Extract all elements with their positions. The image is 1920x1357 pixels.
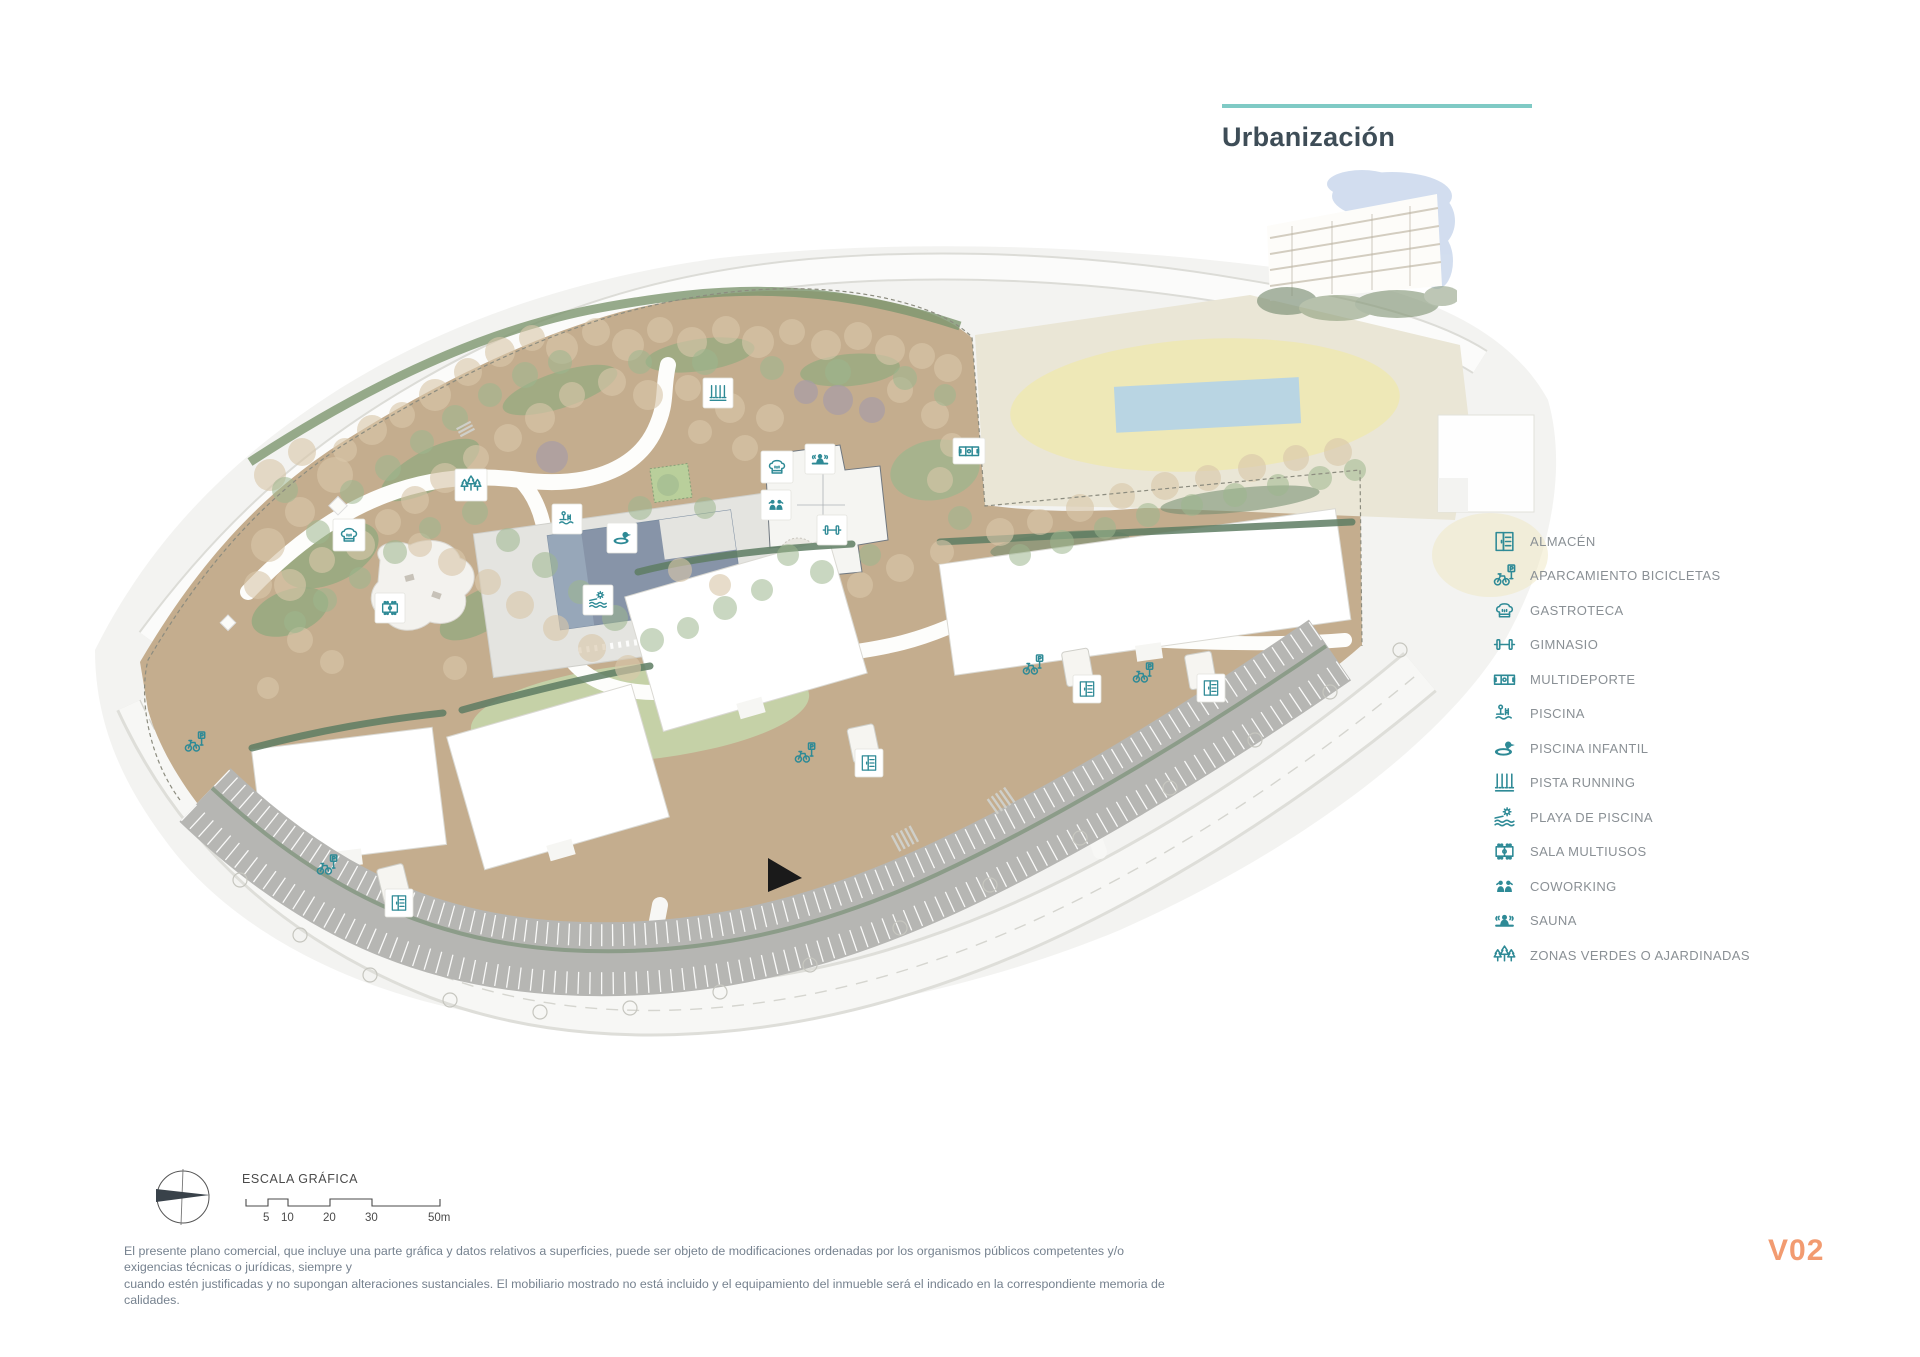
legend-item-piscina-infantil: PISCINA INFANTIL <box>1492 731 1750 766</box>
piscina-infantil-marker <box>607 523 637 553</box>
legend-item-sauna: SAUNA <box>1492 904 1750 939</box>
legend-item-piscina: PISCINA <box>1492 697 1750 732</box>
running-track-icon <box>1492 770 1517 795</box>
zonas-verdes-marker <box>455 469 487 501</box>
almacen-marker <box>855 749 883 777</box>
scale-tick: 30 <box>365 1212 378 1224</box>
header-accent-line <box>1222 104 1532 108</box>
page-title: Urbanización <box>1222 122 1395 153</box>
sun-waves-icon <box>1492 805 1517 830</box>
legend-label: SAUNA <box>1530 913 1577 928</box>
scale-tick: 20 <box>323 1212 336 1224</box>
legend-item-pista-running: PISTA RUNNING <box>1492 766 1750 801</box>
almacen-marker <box>385 889 413 917</box>
legend-label: ALMACÉN <box>1530 534 1596 549</box>
multipurpose-room-icon <box>1492 839 1517 864</box>
duck-float-icon <box>1492 736 1517 761</box>
pool-ladder-icon <box>1492 701 1517 726</box>
legend-label: GIMNASIO <box>1530 637 1598 652</box>
scale-tick: 50m <box>428 1212 450 1224</box>
legend-label: MULTIDEPORTE <box>1530 672 1635 687</box>
legend-item-playa-de-piscina: PLAYA DE PISCINA <box>1492 800 1750 835</box>
legend-item-gastroteca: GASTROTECA <box>1492 593 1750 628</box>
legend-item-multideporte: MULTIDEPORTE <box>1492 662 1750 697</box>
piscina-marker <box>552 504 582 534</box>
legend-label: ZONAS VERDES O AJARDINADAS <box>1530 948 1750 963</box>
gastroteca-marker <box>333 519 365 551</box>
storage-cabinet-icon <box>1492 529 1517 554</box>
dumbbell-icon <box>1492 632 1517 657</box>
chef-hat-icon <box>1492 598 1517 623</box>
bicycle-parking-icon <box>1492 563 1517 588</box>
legend-item-sala-multiusos: SALA MULTIUSOS <box>1492 835 1750 870</box>
legend-label: PLAYA DE PISCINA <box>1530 810 1653 825</box>
legend-item-coworking: COWORKING <box>1492 869 1750 904</box>
sports-court-icon <box>1492 667 1517 692</box>
graphic-scale: ESCALA GRÁFICA 5 10 20 30 50m <box>242 1171 450 1224</box>
legend-label: PISCINA <box>1530 706 1585 721</box>
pista-running-marker <box>703 378 733 408</box>
disclaimer-line-1: El presente plano comercial, que incluye… <box>124 1243 1184 1276</box>
gastroteca-marker <box>761 451 793 483</box>
legend-label: GASTROTECA <box>1530 603 1624 618</box>
multideporte-marker <box>953 438 985 464</box>
scale-label: ESCALA GRÁFICA <box>242 1171 358 1186</box>
legend-label: PISTA RUNNING <box>1530 775 1635 790</box>
plan-sheet: { "panel": { "title": "Urbanización", "l… <box>0 0 1920 1357</box>
legend-label: COWORKING <box>1530 879 1617 894</box>
scale-tick: 10 <box>281 1212 294 1224</box>
scale-tick: 5 <box>263 1212 269 1224</box>
disclaimer-line-2: cuando estén justificadas y no supongan … <box>124 1276 1184 1309</box>
building-rendering <box>1252 166 1457 326</box>
legend-label: PISCINA INFANTIL <box>1530 741 1648 756</box>
coworking-people-icon <box>1492 874 1517 899</box>
almacen-marker <box>1073 675 1101 703</box>
sauna-person-icon <box>1492 908 1517 933</box>
playa-piscina-marker <box>583 585 613 615</box>
legend-item-aparcamiento-bicicletas: APARCAMIENTO BICICLETAS <box>1492 559 1750 594</box>
context-pool <box>1114 377 1301 433</box>
coworking-marker <box>761 490 791 520</box>
legend: ALMACÉN APARCAMIENTO BICICLETAS GASTROTE… <box>1492 524 1750 973</box>
north-compass <box>156 1169 210 1225</box>
legend-label: APARCAMIENTO BICICLETAS <box>1530 568 1721 583</box>
legend-item-gimnasio: GIMNASIO <box>1492 628 1750 663</box>
disclaimer-text: El presente plano comercial, que incluye… <box>124 1243 1184 1309</box>
gimnasio-marker <box>817 515 847 545</box>
sauna-marker <box>805 444 835 474</box>
trees-icon <box>1492 943 1517 968</box>
legend-label: SALA MULTIUSOS <box>1530 844 1647 859</box>
almacen-marker <box>1197 674 1225 702</box>
legend-item-almacen: ALMACÉN <box>1492 524 1750 559</box>
version-badge: V02 <box>1768 1234 1824 1268</box>
legend-item-zonas-verdes: ZONAS VERDES O AJARDINADAS <box>1492 938 1750 973</box>
sala-multiusos-marker <box>375 593 405 623</box>
